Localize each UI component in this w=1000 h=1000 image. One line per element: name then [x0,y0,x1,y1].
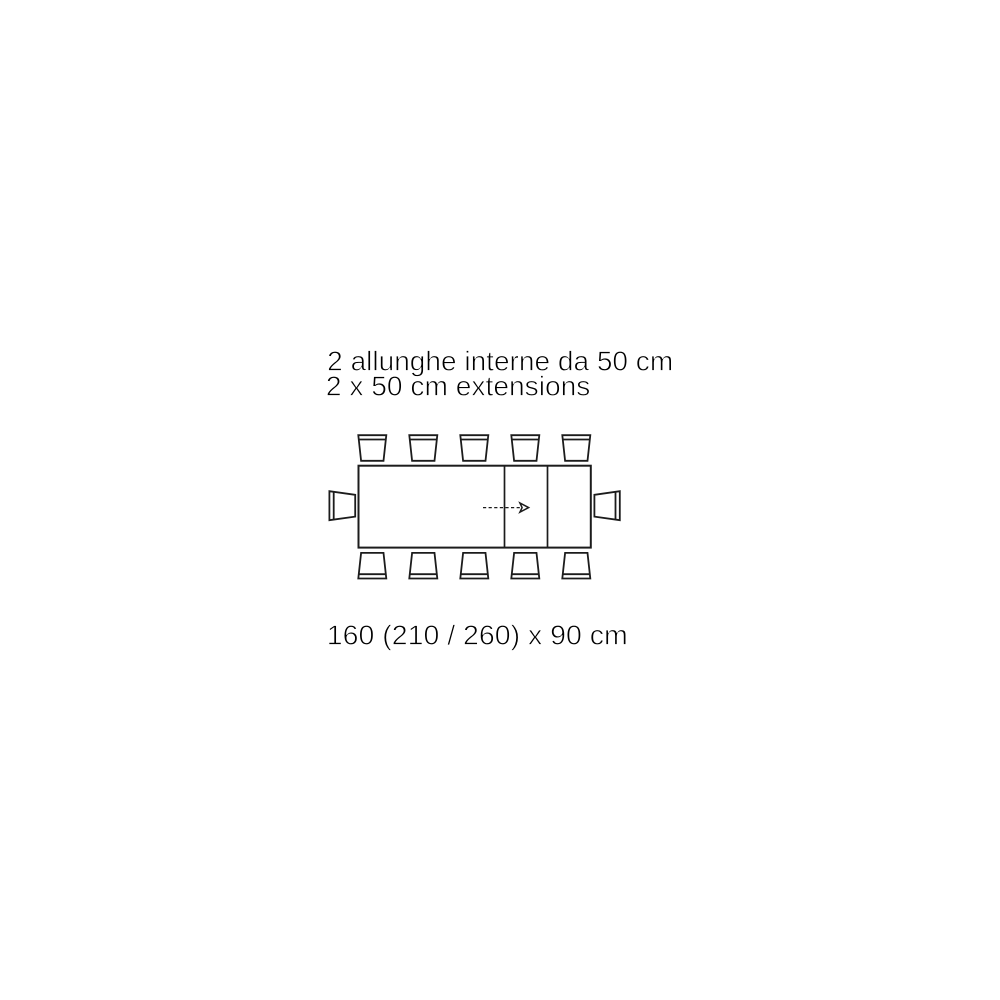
svg-text:2 x 50 cm extensions: 2 x 50 cm extensions [326,371,591,402]
svg-text:160 (210 / 260) x 90 cm: 160 (210 / 260) x 90 cm [327,620,628,651]
